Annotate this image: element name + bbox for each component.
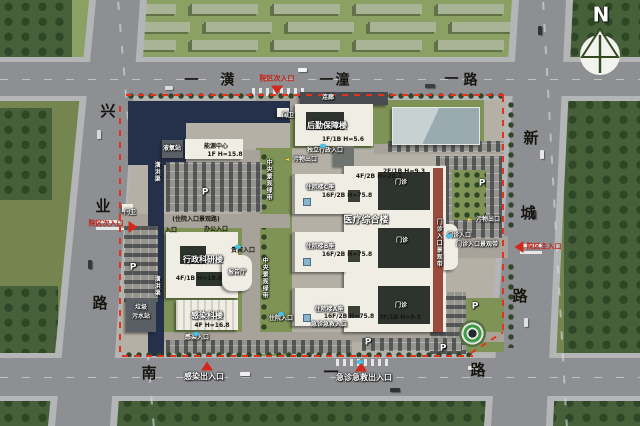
north-letter: N [593,5,610,26]
car [425,84,435,88]
waste-exit-label: 污物出口 [476,217,500,223]
waste-exit-arrow-icon: ► [468,217,473,223]
helipad [459,320,486,347]
inpatient-entrance-label: 住院入口 [269,316,293,322]
complex-courtyard [378,228,430,268]
skylight [303,198,311,206]
entrance-marker-icon [320,144,326,148]
waste-station-label: 垃圾 [135,305,147,311]
residential-block [450,22,512,32]
infection-building-label: 感染科楼 [191,312,223,320]
road-dash: 一 [320,74,335,89]
residential-block [272,40,340,50]
infection-building-spec: 4F H=16.8 [194,323,229,329]
car [97,130,101,139]
gate-arrow-icon [201,362,213,371]
green-axis-label: 中央景观绿带 [265,159,271,201]
inpatient-c-label: 住院楼C座 [306,185,334,191]
waste-exit-arrow-icon: ◄ [285,157,290,163]
entrance-marker-icon [446,234,452,238]
canal-label: 潢洪渠 [153,276,159,297]
north-road-char-1: 潢 [221,74,236,89]
guard-label: 门卫 [124,210,136,216]
north-road-char-2: 潼 [336,74,351,89]
car [524,318,528,327]
admin-building-spec: 4F/1B H=18.6 [176,276,222,282]
car [298,68,307,72]
energy-center-spec: 1F H=15.8 [207,152,242,158]
inpatient-c-spec: 16F/2B H=75.8 [322,193,372,199]
car [540,150,544,159]
west-road-char-2: 业 [95,199,110,215]
residential-block [272,4,340,14]
inpatient-b-label: 住院楼B座 [306,244,335,250]
outpatient-label: 门诊 [395,303,407,309]
north-arrow-icon [574,27,626,77]
entrance-marker-icon [193,332,199,336]
east-road-char-3: 路 [512,289,527,305]
hospital-site-plan: 一 潢 一 潼 一 路 兴 业 路 新 城 路 南 一 路 院区次入口 院区次入… [0,0,640,426]
glass-hall-building [392,107,480,145]
skylight [303,258,311,266]
outpatient-belt-label: 门诊入口景观带 [435,219,441,268]
inpatient-b-spec: 16F/2B H=75.8 [322,252,372,258]
parking-marker: P [472,302,479,311]
parking-marker: P [130,263,137,272]
outpatient-belt-label: 门诊入口景观带 [456,242,498,248]
vip-entrance-label: 贵宾入口 [231,248,255,254]
lox-station-label: 液氧站 [163,146,181,152]
road-dash: 一 [185,74,200,89]
parking-lot-west [166,162,262,212]
outpatient-label: 门诊 [396,238,408,244]
north-road-char-3: 路 [464,74,479,89]
outpatient-label: 门诊 [395,180,407,186]
admin-entrance-label: 独立行政入口 [307,148,343,154]
skylight [303,314,311,322]
west-road-char-1: 兴 [100,104,115,120]
gate-arrow-icon [515,241,524,253]
south-road-char-1: 南 [141,366,156,382]
canal-label: 潢洪渠 [153,162,159,183]
residential-block [204,22,272,32]
admin-building-label: 行政科研楼 [183,256,223,264]
site-boundary [502,96,504,330]
medical-complex-label: 医疗综合楼 [343,216,388,225]
parking-marker: P [440,344,447,353]
east-road-char-2: 城 [520,206,535,222]
energy-center-label: 能源中心 [204,144,228,150]
gate-arrow-icon [129,221,138,233]
inpatient-road-label: (住院入口景观路) [172,217,220,223]
entrance-marker-icon [235,245,241,249]
east-road-char-1: 新 [523,131,538,147]
site-boundary [126,94,504,96]
emergency-gate-label: 急诊急救出入口 [336,374,392,382]
residential-block [368,22,436,32]
car [240,372,250,376]
inpatient-a-spec: 16F/2B H=75.8 [324,314,374,320]
car [390,388,400,392]
residential-block [190,40,258,50]
site-boundary [122,355,473,357]
car [538,26,542,35]
residential-block [354,4,422,14]
north-secondary-gate-label: 院区次入口 [260,75,295,82]
outpatient-spec-south: 3F/1B H=9.3 [379,315,421,321]
south-road-char-3: 路 [470,363,485,379]
lecture-hall-label: 报告厅 [228,270,246,276]
west-road-char-3: 路 [92,296,107,312]
entrance-marker-icon [278,312,284,316]
outpatient-spec-mid: 4F/2B H=20.1 [356,174,402,180]
parking-marker: P [365,338,372,347]
emergency-entrance-label: 急诊急救入口 [311,322,347,328]
residential-block [436,40,504,50]
residential-block [354,40,422,50]
logistics-label: 后勤保障楼 [307,122,347,130]
gate-arrow-icon [271,86,283,95]
road-dash: 一 [445,73,460,88]
office-entrance-label: 办公入口 [204,227,228,233]
corridor-label: 连廊 [322,95,334,101]
residential-block [286,22,354,32]
green-axis-label: 中央景观绿带 [261,257,267,299]
main-gate-label: 院区主入口 [527,243,562,250]
infection-gate-label: 感染出入口 [184,373,224,381]
lane-marking [0,377,640,378]
car [165,86,173,90]
logistics-spec: 1F/1B H=5.6 [322,137,364,143]
car [88,260,92,269]
west-secondary-gate-label: 院区次入口 [89,220,124,227]
tree-cluster [0,0,72,58]
waste-exit-label: 污物出口 [293,157,317,163]
street-tree-row [506,100,515,232]
waste-station-label: 污水站 [132,314,150,320]
parking-marker: P [479,179,486,188]
residential-block [190,4,258,14]
residential-block [436,4,504,14]
parking-marker: P [202,188,209,197]
tree-cluster [0,108,52,200]
entrance-marker-icon [357,360,363,364]
guard-label: 门卫 [282,113,294,119]
entrance-label: 入口 [165,228,177,234]
east-forest [564,98,640,358]
